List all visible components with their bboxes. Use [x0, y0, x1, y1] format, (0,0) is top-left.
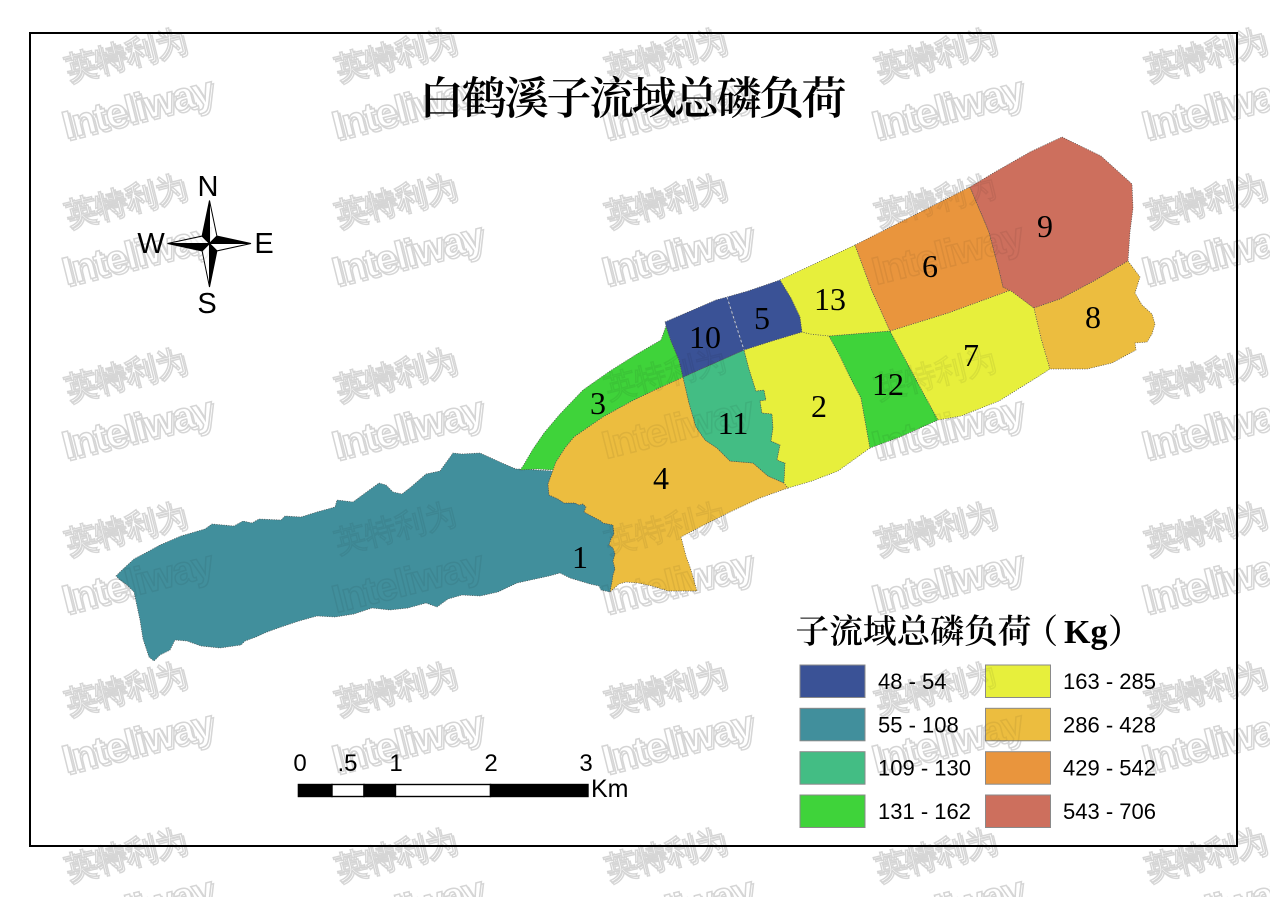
svg-text:8: 8 [1085, 299, 1101, 335]
svg-text:2: 2 [484, 750, 497, 777]
svg-text:9: 9 [1037, 208, 1053, 244]
svg-text:13: 13 [814, 281, 846, 317]
svg-text:10: 10 [689, 319, 721, 355]
svg-text:3: 3 [590, 385, 606, 421]
svg-text:S: S [197, 288, 216, 320]
svg-text:4: 4 [653, 460, 669, 496]
svg-text:1: 1 [572, 539, 588, 575]
svg-text:163 - 285: 163 - 285 [1063, 669, 1156, 694]
svg-text:Kg: Kg [1064, 614, 1107, 651]
svg-text:3: 3 [579, 750, 592, 777]
svg-text:2: 2 [811, 388, 827, 424]
svg-text:131 - 162: 131 - 162 [878, 799, 971, 824]
svg-text:E: E [254, 228, 273, 260]
svg-text:286 - 428: 286 - 428 [1063, 712, 1156, 737]
svg-text:543 - 706: 543 - 706 [1063, 799, 1156, 824]
svg-text:0: 0 [293, 750, 306, 777]
svg-text:N: N [198, 171, 219, 203]
svg-text:5: 5 [754, 300, 770, 336]
